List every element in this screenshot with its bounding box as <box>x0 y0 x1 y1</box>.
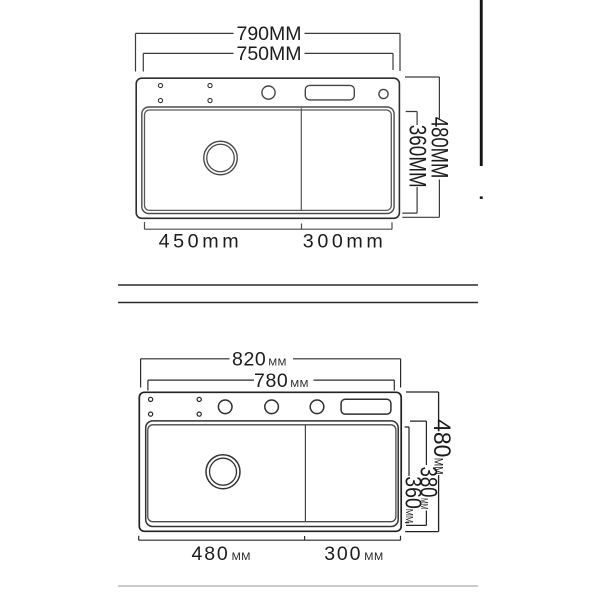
svg-text:MM: MM <box>403 509 415 523</box>
svg-text:300mm: 300mm <box>303 231 387 253</box>
svg-text:360MM: 360MM <box>404 125 431 188</box>
svg-text:450mm: 450mm <box>159 231 243 253</box>
svg-text:360: 360 <box>401 476 427 509</box>
svg-text:750MM: 750MM <box>236 43 301 65</box>
svg-text:790MM: 790MM <box>236 23 301 45</box>
svg-text:480: 480 <box>428 419 455 457</box>
